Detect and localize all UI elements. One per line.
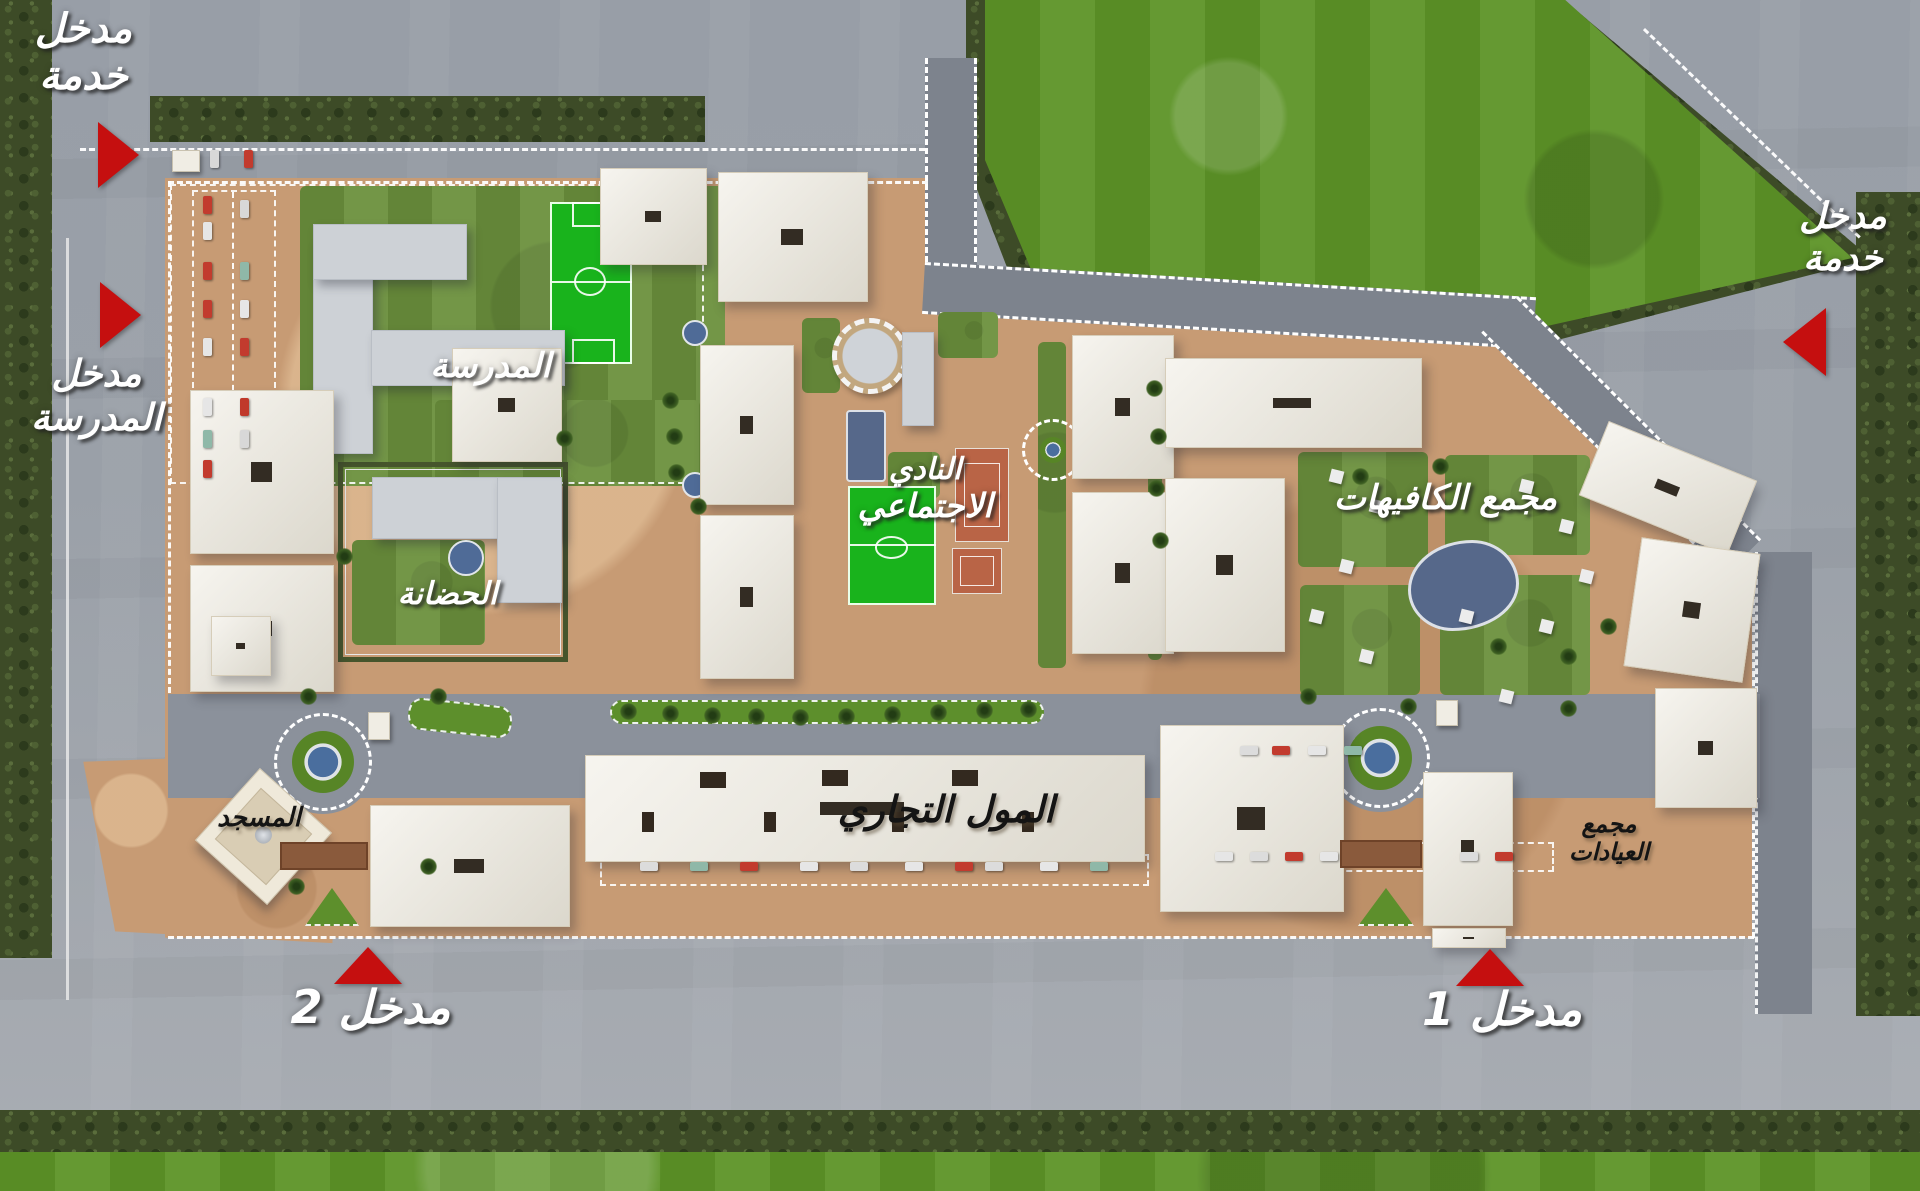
parked-car (955, 862, 973, 871)
tree (976, 702, 993, 719)
club-lawn-east (938, 312, 998, 358)
roof-detail (764, 812, 776, 832)
tennis-court-south (952, 548, 1002, 594)
tree-strip-bottom (0, 1110, 1920, 1154)
roof-detail (822, 770, 848, 786)
residential-building (1624, 537, 1761, 682)
parked-car (210, 150, 219, 168)
parked-car (1040, 862, 1058, 871)
tree (690, 498, 707, 515)
roundabout-east (1348, 726, 1412, 790)
parked-car (203, 222, 212, 240)
roundabout-west (292, 731, 354, 793)
tree (884, 706, 901, 723)
label-school: المدرسة (418, 346, 563, 386)
parked-car (203, 338, 212, 356)
parked-car (240, 430, 249, 448)
label-line: خدمة (1768, 238, 1918, 280)
club-building (902, 332, 934, 426)
parked-car (850, 862, 868, 871)
parked-car (1215, 852, 1233, 861)
parked-car (800, 862, 818, 871)
tree (748, 708, 765, 725)
tree (336, 548, 353, 565)
tree (792, 709, 809, 726)
parked-car (203, 398, 212, 416)
tree (838, 708, 855, 725)
service-entrance-arrow-1 (98, 122, 139, 188)
garden-plaza-circle (1040, 437, 1066, 463)
residential-building (1423, 772, 1513, 926)
label-entrance-2: مدخل 2 (248, 980, 493, 1034)
label-service-entrance-right: مدخل خدمة (1768, 196, 1918, 281)
school-entrance-arrow (100, 282, 141, 348)
entrance-2-arrow (334, 947, 402, 984)
parked-car (640, 862, 658, 871)
parked-car (1320, 852, 1338, 861)
tree (1400, 698, 1417, 715)
parked-car (240, 300, 249, 318)
entrance-gate-1 (1340, 840, 1422, 868)
residential-building (1655, 688, 1757, 808)
tree (1300, 688, 1317, 705)
residential-building (1072, 335, 1174, 479)
tree-strip-right (1856, 192, 1920, 1016)
boundary-south (168, 936, 1754, 939)
parked-car (1308, 746, 1326, 755)
residential-building (700, 515, 794, 679)
tree (668, 464, 685, 481)
parked-car (1250, 852, 1268, 861)
label-line: مدخل (6, 6, 161, 53)
tree (930, 704, 947, 721)
pitch-halfway-line (850, 544, 936, 546)
roof-detail (952, 770, 978, 786)
tree (1490, 638, 1507, 655)
tree (662, 392, 679, 409)
label-school-entrance: مدخل المدرسة (14, 352, 179, 439)
roof-detail (642, 812, 654, 832)
residential-building (600, 168, 707, 265)
service-entrance-right-arrow (1783, 308, 1826, 376)
east-boundary-road (1755, 552, 1812, 1014)
parked-car (244, 150, 253, 168)
parked-car (1090, 862, 1108, 871)
label-line: مجمع (1550, 810, 1668, 838)
parked-car (240, 338, 249, 356)
residential-building (1165, 478, 1285, 652)
tree (556, 430, 573, 447)
residential-building (211, 616, 271, 676)
residential-building (1432, 928, 1506, 948)
fountain (682, 320, 708, 346)
parked-car (203, 460, 212, 478)
parked-car (203, 430, 212, 448)
tree (300, 688, 317, 705)
service-gate-kiosk (172, 150, 200, 172)
label-line: مدخل (14, 352, 179, 396)
parked-car (1240, 746, 1258, 755)
parked-car (1344, 746, 1362, 755)
central-garden-strip (1038, 342, 1066, 668)
tree (1560, 648, 1577, 665)
residential-building (700, 345, 794, 505)
parked-car (240, 262, 249, 280)
tree-strip-left (0, 0, 52, 958)
school-building-north-wing (313, 224, 467, 280)
label-entrance-1: مدخل 1 (1402, 982, 1602, 1036)
label-mosque: المسجد (203, 803, 315, 834)
tree (288, 878, 305, 895)
label-line: الاجتماعي (830, 487, 1020, 526)
label-line: النادي (830, 452, 1020, 487)
roof-detail (700, 772, 726, 788)
tree (1152, 532, 1169, 549)
residential-building (1165, 358, 1422, 448)
parked-car (985, 862, 1003, 871)
parked-car (203, 262, 212, 280)
label-line: المدرسة (14, 396, 179, 440)
guard-kiosk-east (1436, 700, 1458, 726)
parked-car (1495, 852, 1513, 861)
residential-building (718, 172, 868, 302)
label-clinics-complex: مجمع العيادات (1550, 810, 1668, 867)
label-social-club: النادي الاجتماعي (830, 452, 1020, 526)
label-cafes-complex: مجمع الكافيهات (1303, 478, 1588, 518)
tree (1560, 700, 1577, 717)
hedge-above-school (150, 96, 705, 142)
entrance-gate-2 (280, 842, 368, 870)
parked-car (240, 398, 249, 416)
tree (1146, 380, 1163, 397)
tree (1148, 480, 1165, 497)
parked-car (740, 862, 758, 871)
parked-car (240, 200, 249, 218)
tree (1020, 701, 1037, 718)
parked-car (203, 300, 212, 318)
tree (662, 705, 679, 722)
tree (420, 858, 437, 875)
club-amphitheater-ring (832, 318, 908, 394)
master-plan-canvas: مدخل خدمة مدخل المدرسة المدرسة الحضانة ا… (0, 0, 1920, 1191)
top-road-centerline (80, 148, 925, 151)
tree (430, 688, 447, 705)
parked-car (1460, 852, 1478, 861)
pitch-halfway-line (552, 281, 632, 283)
guard-kiosk-west (368, 712, 390, 740)
tree (620, 703, 637, 720)
parked-car (1272, 746, 1290, 755)
tree (666, 428, 683, 445)
label-service-entrance-top: مدخل خدمة (6, 6, 161, 100)
residential-building (1072, 492, 1174, 654)
parked-car (203, 196, 212, 214)
pitch-penalty-box-bottom (572, 339, 615, 364)
nursery-pool (448, 540, 484, 576)
parked-car (1285, 852, 1303, 861)
label-nursery: الحضانة (375, 576, 520, 613)
tree (1150, 428, 1167, 445)
tree (1432, 458, 1449, 475)
cafes-lawn-3 (1300, 585, 1420, 695)
tree (1600, 618, 1617, 635)
label-line: العيادات (1550, 838, 1668, 866)
pitch-center-circle (875, 536, 908, 558)
entrance-1-arrow (1456, 949, 1524, 986)
label-line: مدخل (1768, 196, 1918, 238)
residential-building (370, 805, 570, 927)
parked-car (905, 862, 923, 871)
parked-car (690, 862, 708, 871)
label-commercial-mall: المول التجاري (812, 788, 1080, 832)
tree (704, 707, 721, 724)
grass-strip-bottom (0, 1152, 1920, 1191)
label-line: خدمة (6, 53, 161, 100)
